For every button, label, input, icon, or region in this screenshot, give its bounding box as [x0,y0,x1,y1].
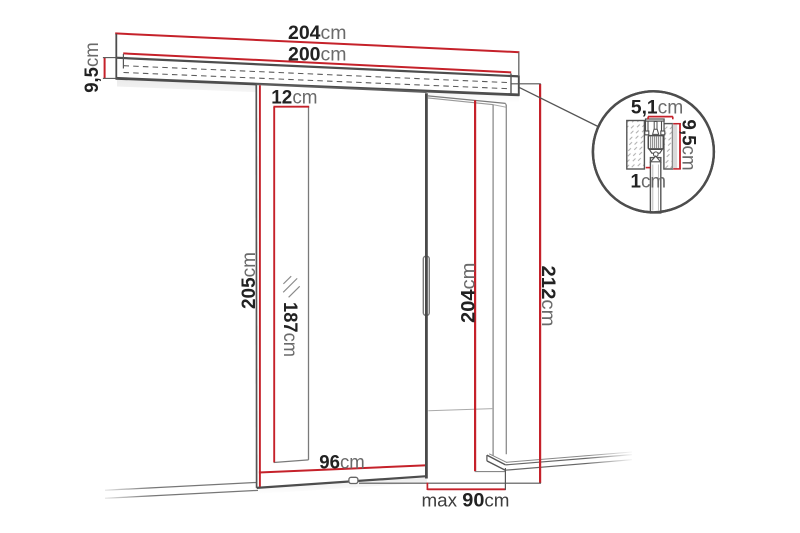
svg-text:96cm: 96cm [319,452,365,473]
svg-text:12cm: 12cm [271,88,317,109]
svg-text:204cm: 204cm [459,263,480,323]
svg-text:9,5cm: 9,5cm [678,119,699,170]
svg-text:205cm: 205cm [239,252,260,309]
svg-text:204cm: 204cm [288,23,347,44]
svg-text:9,5cm: 9,5cm [82,42,103,93]
svg-text:200cm: 200cm [288,45,347,66]
svg-text:1cm: 1cm [631,172,667,193]
svg-text:5,1cm: 5,1cm [631,97,683,118]
svg-text:max 90cm: max 90cm [422,490,510,511]
svg-text:212cm: 212cm [537,266,558,327]
svg-text:187cm: 187cm [279,302,300,357]
